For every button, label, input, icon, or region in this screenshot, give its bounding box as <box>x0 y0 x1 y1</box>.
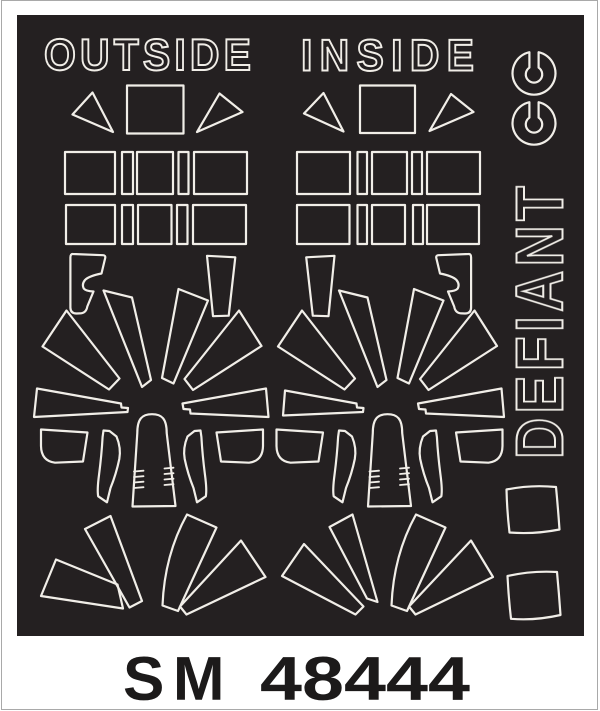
svg-text:DEFIANT: DEFIANT <box>503 186 577 459</box>
svg-text:SM: SM <box>123 645 233 711</box>
svg-text:48444: 48444 <box>260 645 471 711</box>
